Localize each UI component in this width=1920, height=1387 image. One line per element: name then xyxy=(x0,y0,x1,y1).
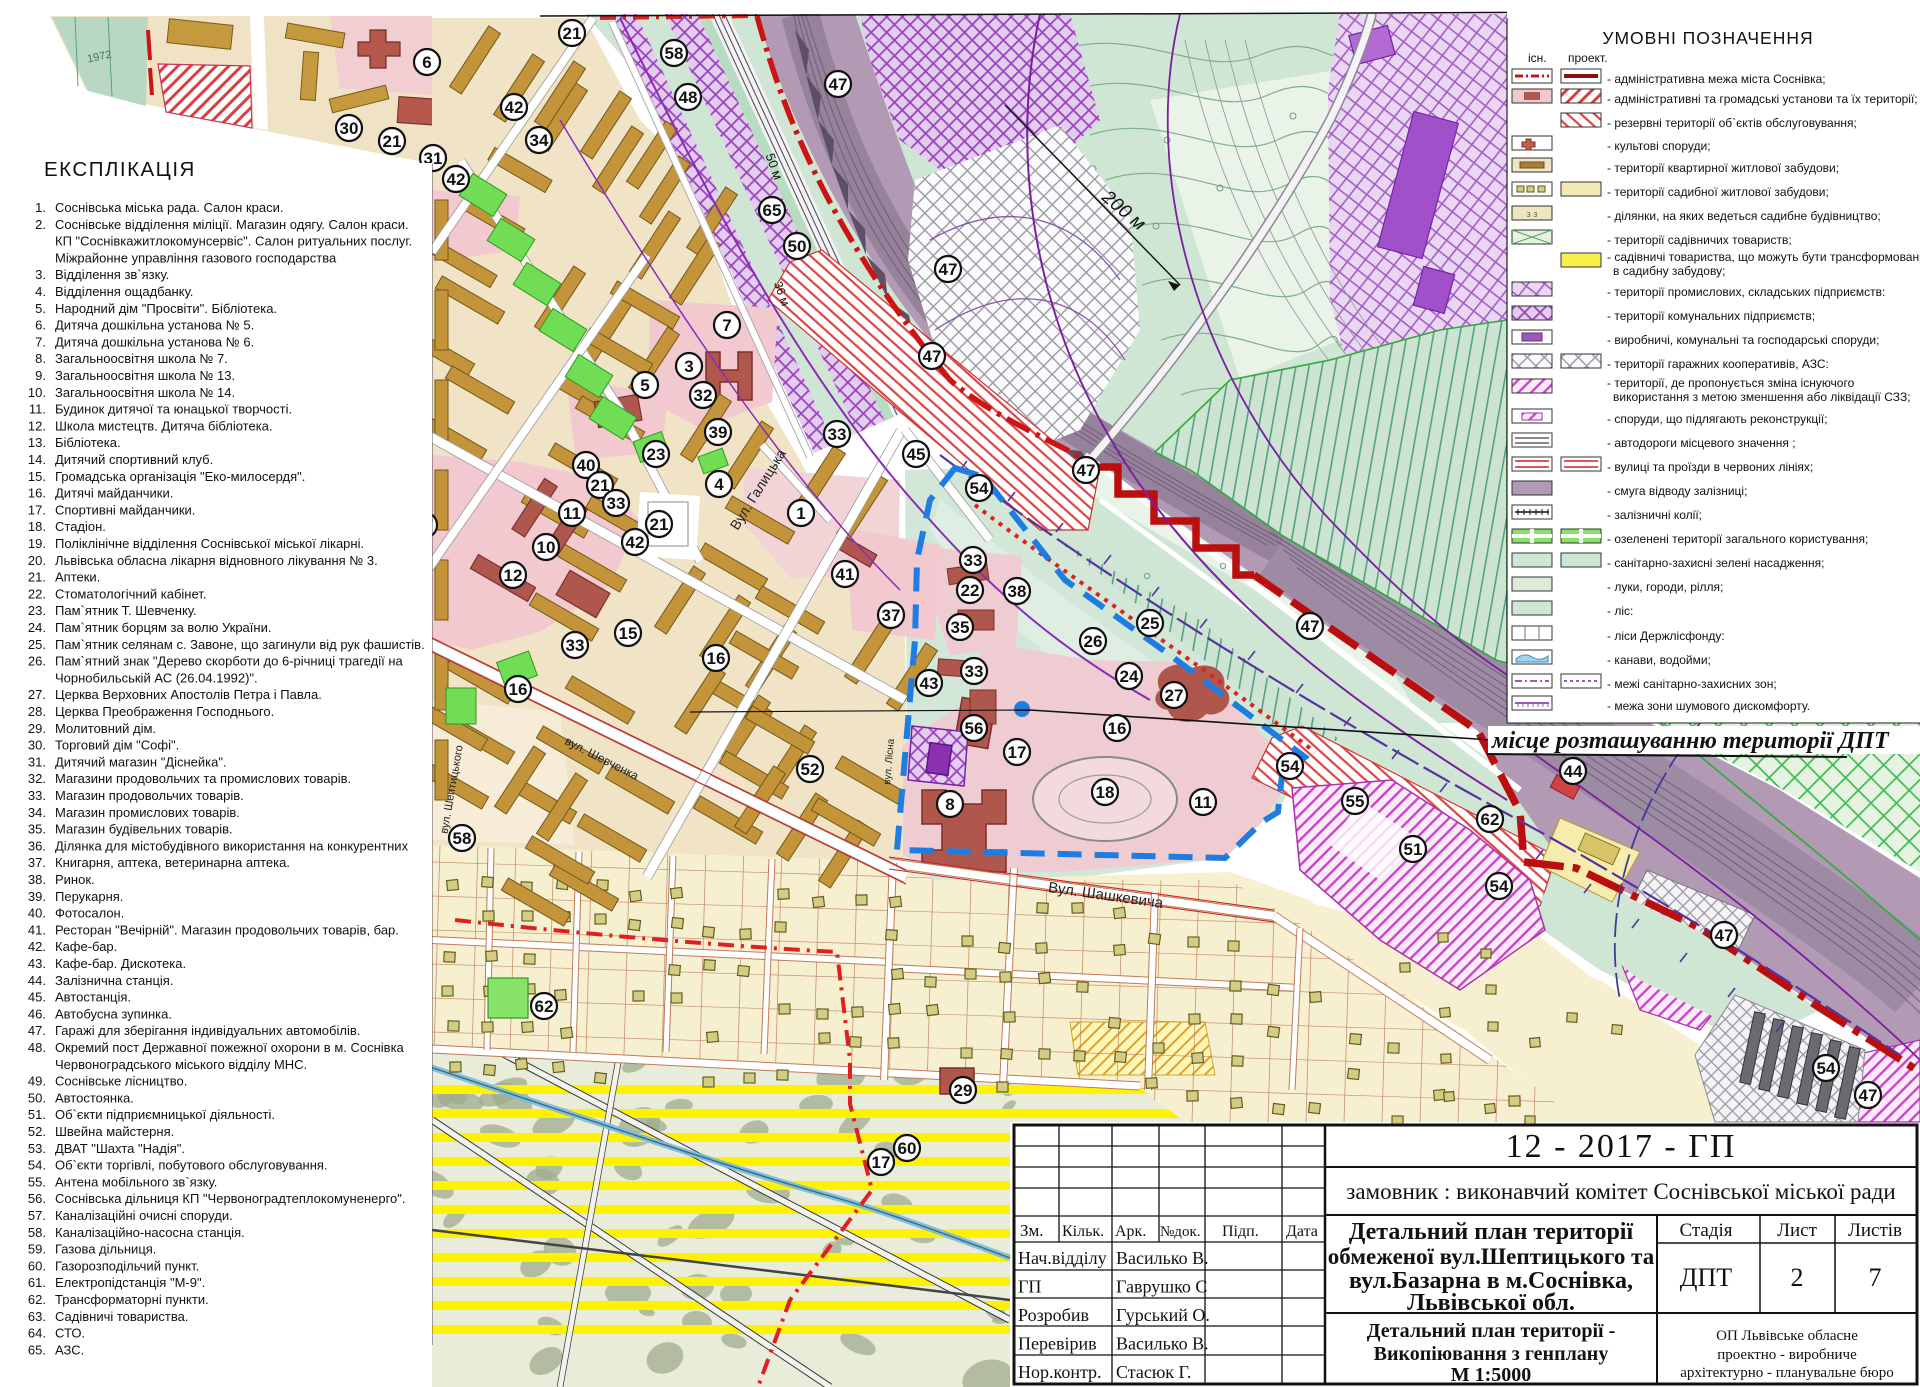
svg-text:СТО.: СТО. xyxy=(55,1326,85,1341)
svg-text:- території гаражних кооперати: - території гаражних кооперативів, АЗС: xyxy=(1607,357,1829,371)
svg-text:Магазин будівельних товарів.: Магазин будівельних товарів. xyxy=(55,822,233,837)
svg-text:проектно - виробниче: проектно - виробниче xyxy=(1717,1347,1857,1363)
svg-text:47: 47 xyxy=(939,260,958,279)
svg-text:1.: 1. xyxy=(35,200,46,215)
svg-text:65: 65 xyxy=(763,201,782,220)
svg-text:Газова дільниця.: Газова дільниця. xyxy=(55,1242,156,1257)
svg-text:59.: 59. xyxy=(28,1242,46,1257)
svg-text:20.: 20. xyxy=(28,553,46,568)
svg-text:- адміністративна межа міста С: - адміністративна межа міста Соснівка; xyxy=(1607,72,1826,86)
svg-text:Трансформаторні пункти.: Трансформаторні пункти. xyxy=(55,1292,209,1307)
svg-text:Зм.: Зм. xyxy=(1020,1221,1044,1240)
svg-text:16.: 16. xyxy=(28,486,46,501)
svg-text:39.: 39. xyxy=(28,889,46,904)
svg-text:55: 55 xyxy=(1346,792,1365,811)
svg-text:47: 47 xyxy=(1715,926,1734,945)
svg-text:27.: 27. xyxy=(28,687,46,702)
svg-text:- межа зони шумового дискомфор: - межа зони шумового дискомфорту. xyxy=(1607,699,1810,713)
svg-text:52: 52 xyxy=(801,760,820,779)
svg-text:33: 33 xyxy=(965,662,984,681)
svg-text:15.: 15. xyxy=(28,469,46,484)
svg-text:10: 10 xyxy=(537,538,556,557)
svg-text:44.: 44. xyxy=(28,973,46,988)
svg-text:Книгарня, аптека, ветеринарна: Книгарня, аптека, ветеринарна аптека. xyxy=(55,855,290,870)
svg-text:47: 47 xyxy=(829,75,848,94)
svg-text:Ділянка для містобудівного вик: Ділянка для містобудівного використання … xyxy=(55,838,409,853)
svg-text:використання з метою зменшення: використання з метою зменшення або лікві… xyxy=(1613,390,1911,404)
svg-text:26: 26 xyxy=(1084,632,1103,651)
svg-text:42.: 42. xyxy=(28,939,46,954)
svg-text:2.: 2. xyxy=(35,217,46,232)
svg-text:обмеженої вул.Шептицького та: обмеженої вул.Шептицького та xyxy=(1328,1244,1655,1269)
svg-text:29: 29 xyxy=(954,1081,973,1100)
svg-text:Окремий пост Державної пожежно: Окремий пост Державної пожежної охорони … xyxy=(55,1040,405,1055)
svg-text:Дитяча дошкільна установа № 6.: Дитяча дошкільна установа № 6. xyxy=(55,334,254,349)
svg-text:8.: 8. xyxy=(35,351,46,366)
svg-text:40.: 40. xyxy=(28,906,46,921)
svg-text:Розробив: Розробив xyxy=(1018,1305,1089,1325)
svg-text:62: 62 xyxy=(535,997,554,1016)
svg-text:55.: 55. xyxy=(28,1174,46,1189)
svg-text:12 - 2017 - ГП: 12 - 2017 - ГП xyxy=(1506,1128,1737,1165)
svg-text:Міжрайонне управління газового: Міжрайонне управління газового господарс… xyxy=(55,250,337,265)
svg-text:Об`єкти підприємницької діяльн: Об`єкти підприємницької діяльності. xyxy=(55,1107,275,1122)
svg-text:8: 8 xyxy=(945,795,954,814)
svg-text:Будинок дитячої та юнацької тв: Будинок дитячої та юнацької творчості. xyxy=(55,402,292,417)
svg-text:52.: 52. xyxy=(28,1124,46,1139)
svg-text:АЗС.: АЗС. xyxy=(55,1342,84,1357)
svg-text:Автостанція.: Автостанція. xyxy=(55,990,131,1005)
svg-text:- автодороги місцевого значенн: - автодороги місцевого значення ; xyxy=(1607,436,1796,450)
svg-text:Антена мобільного зв`язку.: Антена мобільного зв`язку. xyxy=(55,1174,217,1189)
svg-text:18: 18 xyxy=(1096,783,1115,802)
svg-text:17: 17 xyxy=(1008,743,1027,762)
svg-text:23: 23 xyxy=(647,445,666,464)
svg-text:- території промислових, склад: - території промислових, складських підп… xyxy=(1607,285,1885,299)
svg-text:Стоматологічний кабінет.: Стоматологічний кабінет. xyxy=(55,586,206,601)
svg-text:54: 54 xyxy=(1281,757,1300,776)
svg-text:архітектурно - планувальне бюр: архітектурно - планувальне бюро xyxy=(1680,1365,1893,1381)
svg-text:11: 11 xyxy=(1194,793,1212,812)
svg-text:32.: 32. xyxy=(28,771,46,786)
svg-text:28.: 28. xyxy=(28,704,46,719)
svg-text:Молитовний дім.: Молитовний дім. xyxy=(55,721,156,736)
svg-text:24: 24 xyxy=(1120,667,1139,686)
svg-text:Аптеки.: Аптеки. xyxy=(55,570,100,585)
svg-text:замовник : виконавчий комітет: замовник : виконавчий комітет Соснівсько… xyxy=(1346,1179,1895,1204)
svg-text:Загальноосвітня школа № 14.: Загальноосвітня школа № 14. xyxy=(55,385,235,400)
svg-text:Детальний план території -: Детальний план території - xyxy=(1367,1320,1616,1342)
svg-text:Пам`ятник селянам с. Завоне, щ: Пам`ятник селянам с. Завоне, що загинули… xyxy=(55,637,425,652)
svg-text:КП "Соснівкажитлокомунсервіс".: КП "Соснівкажитлокомунсервіс". Салон рит… xyxy=(55,234,412,249)
svg-text:53.: 53. xyxy=(28,1141,46,1156)
svg-text:64.: 64. xyxy=(28,1326,46,1341)
svg-text:58: 58 xyxy=(665,44,684,63)
svg-text:Ресторан "Вечірній". Магазин п: Ресторан "Вечірній". Магазин продовольчи… xyxy=(55,922,399,937)
svg-text:Загальноосвітня школа № 7.: Загальноосвітня школа № 7. xyxy=(55,351,228,366)
svg-text:58: 58 xyxy=(453,829,472,848)
svg-text:Детальний план території: Детальний план території xyxy=(1349,1219,1634,1245)
svg-text:48: 48 xyxy=(679,88,698,107)
svg-text:Об`єкти торгівлі, побутового о: Об`єкти торгівлі, побутового обслуговува… xyxy=(55,1158,328,1173)
svg-text:- території садівничих товарис: - території садівничих товариств; xyxy=(1607,233,1792,247)
svg-text:19.: 19. xyxy=(28,536,46,551)
svg-text:21: 21 xyxy=(383,132,402,151)
svg-text:- садівничі товариства, що мож: - садівничі товариства, що можуть бути т… xyxy=(1607,250,1920,264)
svg-text:36.: 36. xyxy=(28,838,46,853)
svg-text:Автобусна зупинка.: Автобусна зупинка. xyxy=(55,1006,172,1021)
svg-text:Чорнобильській АС (26.04.1992): Чорнобильській АС (26.04.1992)". xyxy=(55,670,258,685)
svg-text:25.: 25. xyxy=(28,637,46,652)
svg-text:Школа мистецтв. Дитяча бібліот: Школа мистецтв. Дитяча бібліотека. xyxy=(55,418,273,433)
svg-text:24.: 24. xyxy=(28,620,46,635)
svg-text:ГП: ГП xyxy=(1018,1277,1041,1297)
svg-text:Пам`ятний знак "Дерево скорбот: Пам`ятний знак "Дерево скорботи до 6-річ… xyxy=(55,654,403,669)
svg-text:11.: 11. xyxy=(29,402,46,417)
svg-text:38: 38 xyxy=(1008,582,1027,601)
svg-text:42: 42 xyxy=(505,98,524,117)
svg-text:39: 39 xyxy=(709,423,728,442)
svg-text:29.: 29. xyxy=(28,721,46,736)
svg-text:УМОВНІ ПОЗНАЧЕННЯ: УМОВНІ ПОЗНАЧЕННЯ xyxy=(1602,28,1813,48)
svg-text:61.: 61. xyxy=(28,1275,46,1290)
svg-text:Церква Верховних Апостолів Пет: Церква Верховних Апостолів Петра і Павла… xyxy=(55,687,322,702)
svg-text:Громадська організація "Еко-ми: Громадська організація "Еко-милосердя". xyxy=(55,469,305,484)
svg-text:проект.: проект. xyxy=(1568,51,1607,65)
svg-text:31.: 31. xyxy=(28,754,46,769)
svg-text:Автостоянка.: Автостоянка. xyxy=(55,1090,134,1105)
svg-text:5: 5 xyxy=(640,376,649,395)
svg-text:- території комунальних підпри: - території комунальних підприємств; xyxy=(1607,309,1815,323)
svg-text:Нор.контр.: Нор.контр. xyxy=(1018,1362,1102,1382)
svg-text:14.: 14. xyxy=(28,452,46,467)
svg-text:Каналізаційно-насосна станція.: Каналізаційно-насосна станція. xyxy=(55,1225,245,1240)
svg-text:Залізнична станція.: Залізнична станція. xyxy=(55,973,173,988)
svg-text:21: 21 xyxy=(650,515,669,534)
svg-text:ДВАТ "Шахта "Надія".: ДВАТ "Шахта "Надія". xyxy=(55,1141,185,1156)
svg-text:Садівничі товариства.: Садівничі товариства. xyxy=(55,1309,188,1324)
svg-text:62.: 62. xyxy=(28,1292,46,1307)
svg-text:- території садибної житлової: - території садибної житлової забудови; xyxy=(1607,185,1829,199)
svg-text:41: 41 xyxy=(836,565,855,584)
svg-text:Стадія: Стадія xyxy=(1679,1220,1732,1241)
svg-text:58.: 58. xyxy=(28,1225,46,1240)
svg-text:- території, де пропонується з: - території, де пропонується зміна існую… xyxy=(1607,376,1855,390)
svg-text:Електропідстанція "М-9".: Електропідстанція "М-9". xyxy=(55,1275,205,1290)
svg-text:54: 54 xyxy=(970,479,989,498)
svg-text:12.: 12. xyxy=(28,418,46,433)
svg-text:56.: 56. xyxy=(28,1191,46,1206)
svg-text:Кафе-бар. Дискотека.: Кафе-бар. Дискотека. xyxy=(55,956,186,971)
svg-text:Червоноградського міського від: Червоноградського міського відділу МНС. xyxy=(55,1057,307,1072)
svg-text:Швейна майстерня.: Швейна майстерня. xyxy=(55,1124,174,1139)
svg-text:3.: 3. xyxy=(35,267,46,282)
svg-text:Дата: Дата xyxy=(1286,1223,1318,1240)
svg-text:Пам`ятник борцям за волю Украї: Пам`ятник борцям за волю України. xyxy=(55,620,271,635)
svg-text:Підп.: Підп. xyxy=(1222,1223,1259,1240)
svg-text:33: 33 xyxy=(828,425,847,444)
svg-text:17: 17 xyxy=(872,1153,891,1172)
svg-text:15: 15 xyxy=(619,624,638,643)
svg-text:Нач.відділу: Нач.відділу xyxy=(1018,1248,1107,1268)
svg-text:5.: 5. xyxy=(35,301,46,316)
svg-text:34: 34 xyxy=(530,131,549,150)
svg-text:51.: 51. xyxy=(28,1107,46,1122)
svg-text:Викопіювання з генплану: Викопіювання з генплану xyxy=(1374,1343,1609,1365)
svg-text:47.: 47. xyxy=(28,1023,46,1038)
svg-text:- ліс:: - ліс: xyxy=(1607,604,1633,618)
svg-text:54.: 54. xyxy=(28,1158,46,1173)
svg-text:Кафе-бар.: Кафе-бар. xyxy=(55,939,117,954)
svg-text:11: 11 xyxy=(563,504,581,523)
svg-text:33: 33 xyxy=(607,494,626,513)
svg-text:- канави, водойми;: - канави, водойми; xyxy=(1607,653,1711,667)
svg-text:Стасюк Г.: Стасюк Г. xyxy=(1116,1362,1191,1382)
svg-text:М 1:5000: М 1:5000 xyxy=(1451,1364,1532,1386)
svg-text:32: 32 xyxy=(694,386,713,405)
svg-text:- вулиці та проїзди в червоних: - вулиці та проїзди в червоних лініях; xyxy=(1607,460,1813,474)
svg-text:Гурський О.: Гурський О. xyxy=(1116,1305,1210,1325)
svg-text:Ринок.: Ринок. xyxy=(55,872,95,887)
svg-text:7: 7 xyxy=(1869,1263,1882,1292)
svg-text:Торговий дім "Софі".: Торговий дім "Софі". xyxy=(55,738,179,753)
svg-text:33.: 33. xyxy=(28,788,46,803)
svg-text:Соснівське відділення міліції.: Соснівське відділення міліції. Магазин о… xyxy=(55,217,409,232)
svg-text:Василько В.: Василько В. xyxy=(1116,1248,1209,1268)
svg-text:65.: 65. xyxy=(28,1342,46,1357)
svg-text:4.: 4. xyxy=(35,284,46,299)
svg-text:Перевірив: Перевірив xyxy=(1018,1334,1097,1354)
svg-text:- виробничі, комунальні та гос: - виробничі, комунальні та господарські … xyxy=(1607,333,1879,347)
svg-text:Соснівське лісництво.: Соснівське лісництво. xyxy=(55,1074,187,1089)
svg-text:50: 50 xyxy=(788,237,807,256)
svg-text:Листів: Листів xyxy=(1848,1220,1902,1241)
svg-text:46.: 46. xyxy=(28,1006,46,1021)
svg-text:Поліклінічне відділення Соснів: Поліклінічне відділення Соснівської місь… xyxy=(55,536,364,551)
svg-text:Дитячі майданчики.: Дитячі майданчики. xyxy=(55,486,173,501)
svg-text:26.: 26. xyxy=(28,654,46,669)
svg-text:Каналізаційні очисні споруди.: Каналізаційні очисні споруди. xyxy=(55,1208,233,1223)
svg-text:25: 25 xyxy=(1141,614,1160,633)
svg-text:Відділення зв`язку.: Відділення зв`язку. xyxy=(55,267,169,282)
svg-text:43: 43 xyxy=(920,674,939,693)
svg-text:23.: 23. xyxy=(28,603,46,618)
svg-text:49.: 49. xyxy=(28,1074,46,1089)
svg-text:37: 37 xyxy=(882,606,901,625)
svg-text:Церква Преображення Господньог: Церква Преображення Господнього. xyxy=(55,704,274,719)
svg-text:60.: 60. xyxy=(28,1258,46,1273)
svg-text:Магазини продовольчих та проми: Магазини продовольчих та промислових тов… xyxy=(55,771,351,786)
svg-text:7.: 7. xyxy=(35,334,46,349)
svg-text:- ліси Держлісфонду:: - ліси Держлісфонду: xyxy=(1607,629,1725,643)
svg-text:Загальноосвітня школа № 13.: Загальноосвітня школа № 13. xyxy=(55,368,235,383)
svg-text:- смуга відводу залізниці;: - смуга відводу залізниці; xyxy=(1607,484,1747,498)
svg-text:- адміністративні та громадськ: - адміністративні та громадські установи… xyxy=(1607,92,1918,106)
svg-text:45: 45 xyxy=(907,445,926,464)
svg-text:в садибну забудову;: в садибну забудову; xyxy=(1613,264,1725,278)
svg-text:Газорозподільчий пункт.: Газорозподільчий пункт. xyxy=(55,1258,199,1273)
svg-text:Дитячий спортивний клуб.: Дитячий спортивний клуб. xyxy=(55,452,213,467)
svg-text:60: 60 xyxy=(898,1139,917,1158)
svg-text:42: 42 xyxy=(626,533,645,552)
svg-text:51: 51 xyxy=(1404,840,1423,859)
svg-text:47: 47 xyxy=(923,347,942,366)
svg-text:45.: 45. xyxy=(28,990,46,1005)
svg-text:56: 56 xyxy=(965,719,984,738)
svg-text:Львівська обласна лікарня відн: Львівська обласна лікарня відновного лік… xyxy=(55,553,378,568)
svg-text:10.: 10. xyxy=(28,385,46,400)
svg-text:Арк.: Арк. xyxy=(1115,1223,1146,1240)
svg-text:16: 16 xyxy=(707,649,726,668)
svg-text:16: 16 xyxy=(1108,719,1127,738)
svg-text:- ділянки, на яких ведеться са: - ділянки, на яких ведеться садибне буді… xyxy=(1607,209,1881,223)
svg-text:37.: 37. xyxy=(28,855,46,870)
svg-text:34.: 34. xyxy=(28,805,46,820)
svg-text:Фотосалон.: Фотосалон. xyxy=(55,906,124,921)
svg-text:22: 22 xyxy=(961,581,980,600)
svg-text:Магазин промислових товарів.: Магазин промислових товарів. xyxy=(55,805,240,820)
svg-text:з з: з з xyxy=(1527,209,1538,219)
svg-text:Пам`ятник Т. Шевченку.: Пам`ятник Т. Шевченку. xyxy=(55,603,197,618)
svg-text:Соснівська дільниця КП "Червон: Соснівська дільниця КП "Червоноградтепло… xyxy=(55,1191,406,1206)
svg-text:Гаражі для зберігання індивіду: Гаражі для зберігання індивідуальних авт… xyxy=(55,1023,360,1038)
svg-text:30.: 30. xyxy=(28,738,46,753)
svg-text:33: 33 xyxy=(566,636,585,655)
svg-text:існ.: існ. xyxy=(1528,51,1547,65)
svg-text:Соснівська міська рада. Салон: Соснівська міська рада. Салон краси. xyxy=(55,200,283,215)
svg-text:6.: 6. xyxy=(35,318,46,333)
svg-text:33: 33 xyxy=(964,551,983,570)
svg-text:6: 6 xyxy=(422,53,431,72)
svg-text:№док.: №док. xyxy=(1160,1224,1200,1240)
svg-text:ОП Львівське обласне: ОП Львівське обласне xyxy=(1716,1328,1858,1344)
svg-text:13.: 13. xyxy=(28,435,46,450)
svg-text:21: 21 xyxy=(591,476,610,495)
svg-text:- озеленені території загально: - озеленені території загального користу… xyxy=(1607,532,1868,546)
svg-text:40: 40 xyxy=(577,456,596,475)
svg-text:Народний дім "Просвіти". Біблі: Народний дім "Просвіти". Бібліотека. xyxy=(55,301,277,316)
svg-text:Львівської обл.: Львівської обл. xyxy=(1407,1290,1575,1316)
svg-text:30: 30 xyxy=(340,119,359,138)
svg-text:47: 47 xyxy=(1859,1086,1878,1105)
svg-text:ЕКСПЛІКАЦІЯ: ЕКСПЛІКАЦІЯ xyxy=(44,158,196,181)
svg-text:18.: 18. xyxy=(28,519,46,534)
svg-text:Бібліотека.: Бібліотека. xyxy=(55,435,121,450)
svg-text:48.: 48. xyxy=(28,1040,46,1055)
svg-text:1: 1 xyxy=(796,504,805,523)
svg-text:Відділення ощадбанку.: Відділення ощадбанку. xyxy=(55,284,193,299)
svg-text:16: 16 xyxy=(509,680,528,699)
svg-text:Дитячий магазин "Діснейка".: Дитячий магазин "Діснейка". xyxy=(55,754,227,769)
svg-text:54: 54 xyxy=(1817,1059,1836,1078)
svg-text:ДПТ: ДПТ xyxy=(1680,1263,1733,1292)
svg-text:Василько В.: Василько В. xyxy=(1116,1334,1209,1354)
svg-text:Перукарня.: Перукарня. xyxy=(55,889,123,904)
svg-text:Спортивні майданчики.: Спортивні майданчики. xyxy=(55,502,195,517)
svg-text:- межі санітарно-захисних зон;: - межі санітарно-захисних зон; xyxy=(1607,677,1777,691)
svg-text:41.: 41. xyxy=(28,922,46,937)
svg-text:43.: 43. xyxy=(28,956,46,971)
svg-text:35.: 35. xyxy=(28,822,46,837)
svg-text:50.: 50. xyxy=(28,1090,46,1105)
svg-text:22.: 22. xyxy=(28,586,46,601)
svg-text:38.: 38. xyxy=(28,872,46,887)
svg-text:12: 12 xyxy=(504,566,523,585)
svg-text:- культові споруди;: - культові споруди; xyxy=(1607,139,1711,153)
svg-text:44: 44 xyxy=(1564,762,1583,781)
svg-text:9.: 9. xyxy=(35,368,46,383)
svg-text:4: 4 xyxy=(714,475,724,494)
svg-text:21.: 21. xyxy=(28,570,46,585)
svg-text:47: 47 xyxy=(1077,461,1096,480)
svg-text:42: 42 xyxy=(447,170,466,189)
svg-text:Дитяча дошкільна установа № 5.: Дитяча дошкільна установа № 5. xyxy=(55,318,254,333)
svg-text:- санітарно-захисні зелені нас: - санітарно-захисні зелені насадження; xyxy=(1607,556,1825,570)
svg-text:35: 35 xyxy=(951,618,970,637)
svg-text:27: 27 xyxy=(1165,686,1184,705)
svg-text:Магазин продовольчих товарів.: Магазин продовольчих товарів. xyxy=(55,788,244,803)
svg-text:- споруди, що підлягають рекон: - споруди, що підлягають реконструкції; xyxy=(1607,412,1828,426)
svg-text:Кільк.: Кільк. xyxy=(1062,1223,1104,1240)
svg-text:57.: 57. xyxy=(28,1208,46,1223)
svg-text:7: 7 xyxy=(722,316,731,335)
svg-text:- луки, городи, рілля;: - луки, городи, рілля; xyxy=(1607,580,1723,594)
svg-text:Лист: Лист xyxy=(1777,1220,1817,1241)
svg-text:62: 62 xyxy=(1481,810,1500,829)
svg-text:Гаврушко С: Гаврушко С xyxy=(1116,1277,1207,1297)
svg-text:2: 2 xyxy=(1791,1263,1804,1292)
svg-text:Стадіон.: Стадіон. xyxy=(55,519,106,534)
svg-text:17.: 17. xyxy=(28,502,46,517)
svg-text:54: 54 xyxy=(1490,877,1509,896)
svg-text:- території квартирної житлово: - території квартирної житлової забудови… xyxy=(1607,161,1839,175)
svg-text:- резервні території об`єктів: - резервні території об`єктів обслуговув… xyxy=(1607,116,1857,130)
svg-text:місце розташуванню території Д: місце розташуванню території ДПТ xyxy=(1491,728,1890,754)
svg-text:- залізничні колії;: - залізничні колії; xyxy=(1607,508,1702,522)
svg-text:63.: 63. xyxy=(28,1309,46,1324)
svg-text:3: 3 xyxy=(684,357,693,376)
svg-text:21: 21 xyxy=(563,24,582,43)
svg-text:47: 47 xyxy=(1301,617,1320,636)
